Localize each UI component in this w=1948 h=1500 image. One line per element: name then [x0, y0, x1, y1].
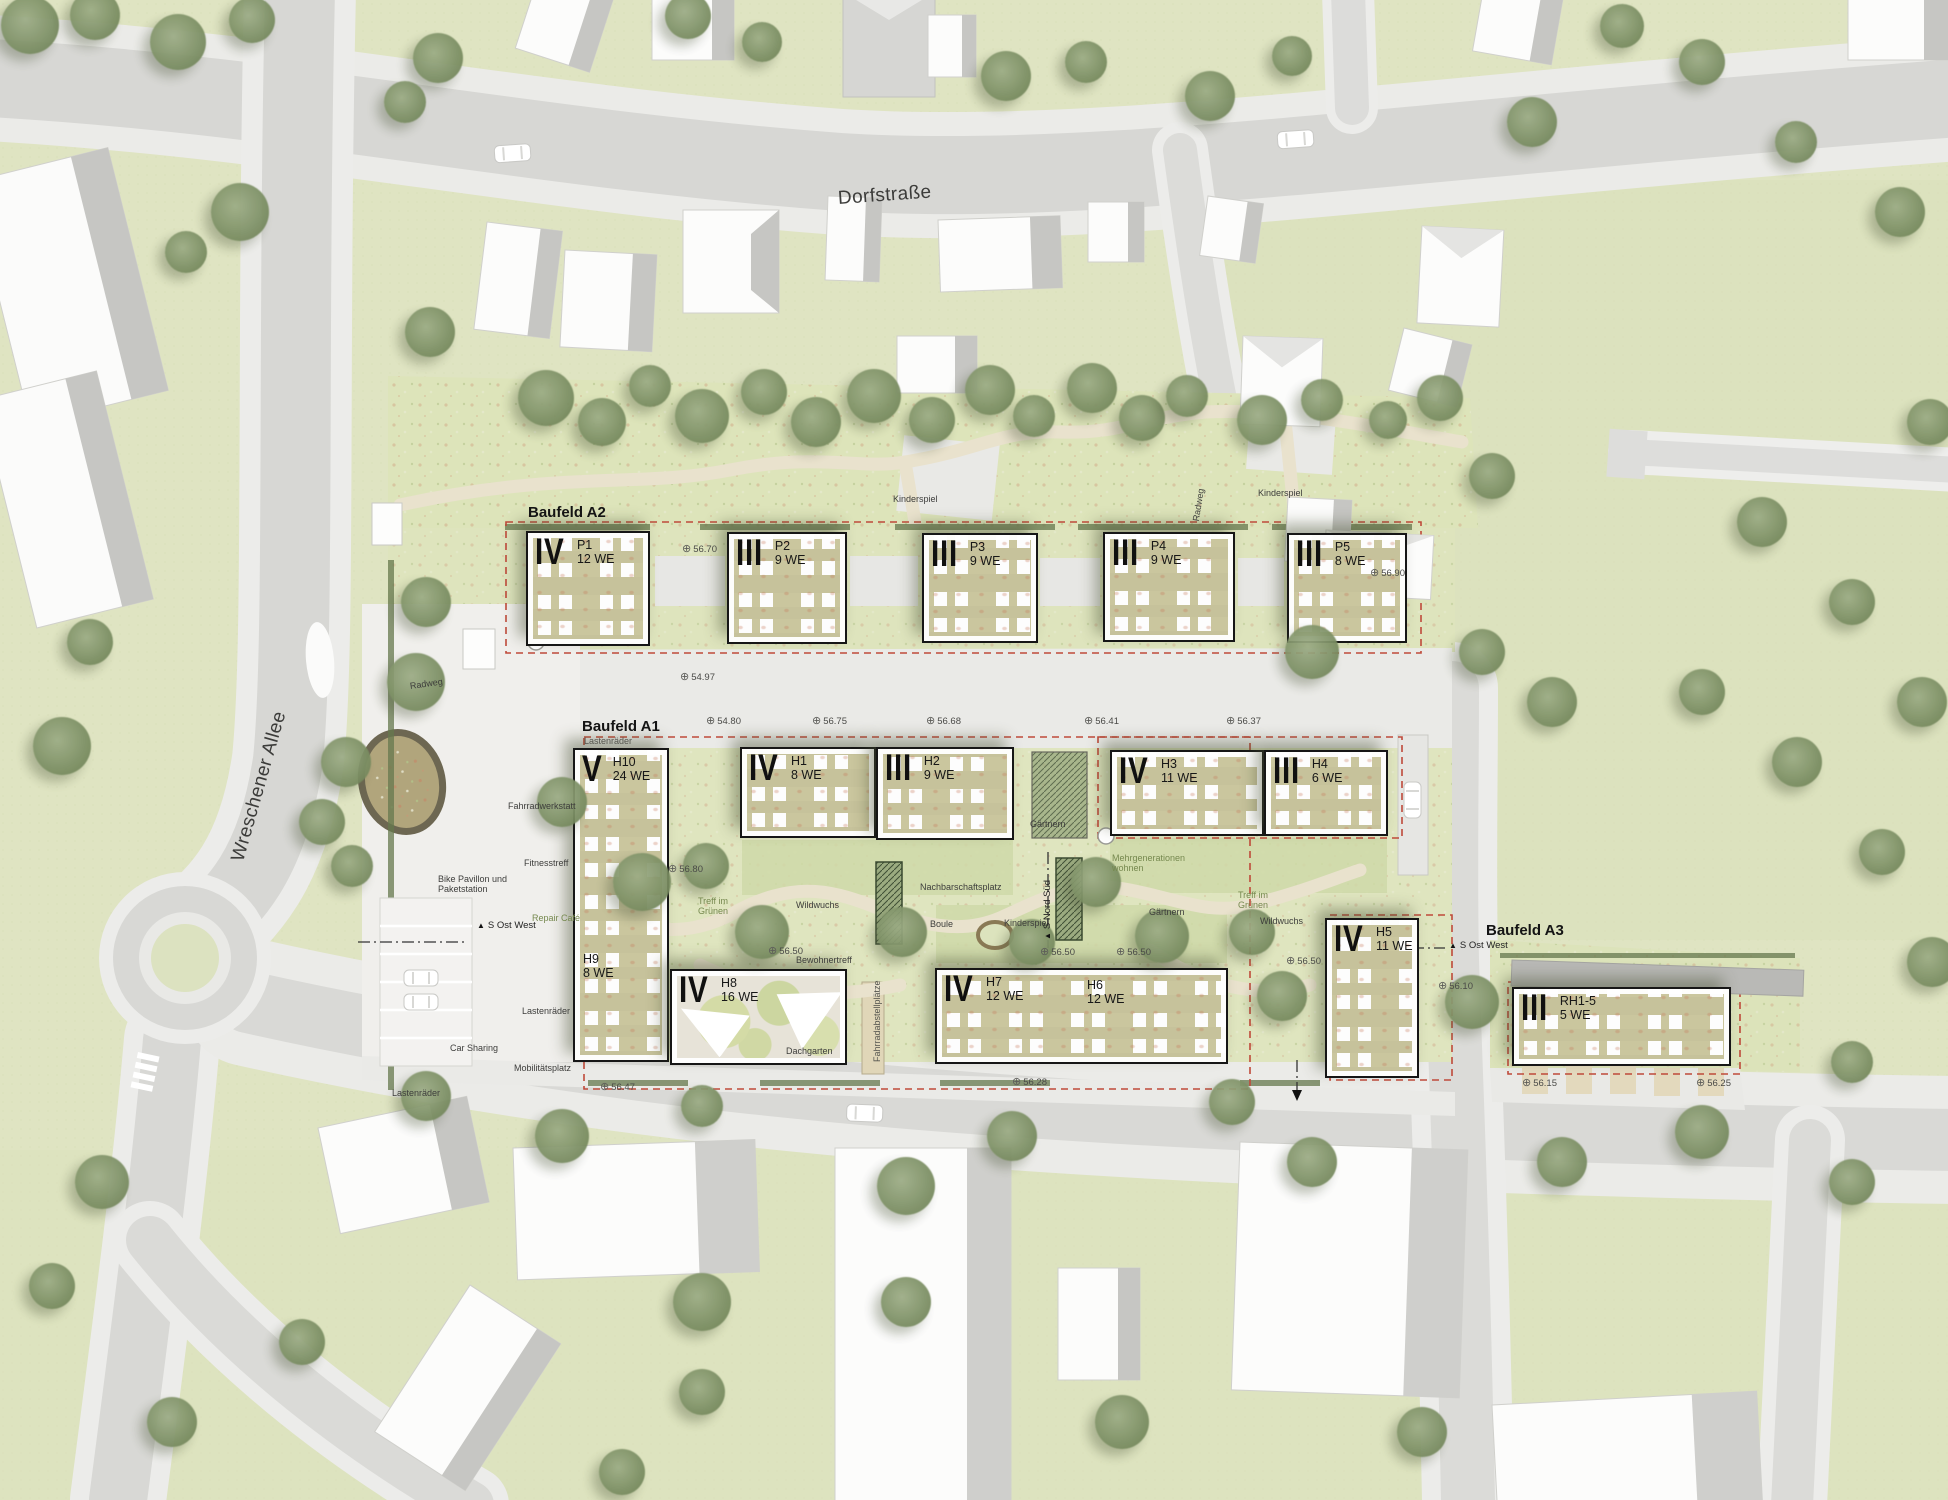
treff-im-gruenen-label: Treff im Grünen: [1238, 890, 1284, 911]
crosshair-icon: ⊕: [768, 946, 777, 957]
building-units: 5 WE: [1560, 1008, 1596, 1022]
tree: [1772, 737, 1822, 787]
tree: [1527, 677, 1577, 727]
building-storeys: IV: [535, 538, 565, 567]
tree: [987, 1111, 1037, 1161]
crosshair-icon: ⊕: [1286, 956, 1295, 967]
tree: [679, 1369, 725, 1415]
gaertnern-label: Gärtnern: [1030, 819, 1066, 829]
building-code: P2: [775, 539, 806, 553]
building-code: H10: [613, 755, 651, 769]
tree: [1459, 629, 1505, 675]
tree: [599, 1449, 645, 1495]
building-storeys: V: [582, 755, 603, 784]
building-storeys: III: [736, 539, 763, 568]
fahrradwerkstatt-label: Fahrradwerkstatt: [508, 801, 576, 811]
building-H4: III H46 WE: [1264, 750, 1388, 836]
tree: [1272, 36, 1312, 76]
building-units: 9 WE: [924, 768, 955, 782]
building-H5: IV H511 WE: [1325, 918, 1419, 1078]
tree: [518, 370, 574, 426]
tree: [1166, 375, 1208, 417]
building-storeys: III: [1112, 539, 1139, 568]
tree: [1831, 1041, 1873, 1083]
tree: [413, 33, 463, 83]
dimension-marker: ⊕54.97: [680, 672, 715, 683]
tree: [1185, 71, 1235, 121]
tree: [681, 1085, 723, 1127]
building-code: P5: [1335, 540, 1366, 554]
tree: [321, 737, 371, 787]
baufeld-a2-label: Baufeld A2: [528, 504, 606, 521]
tree: [613, 853, 671, 911]
tree: [965, 365, 1015, 415]
tree: [29, 1263, 75, 1309]
tree: [279, 1319, 325, 1365]
tree: [1507, 97, 1557, 147]
building-storeys: IV: [679, 976, 709, 1005]
tree: [847, 369, 901, 423]
building-H2: III H29 WE: [876, 747, 1014, 840]
building-P4: III P49 WE: [1103, 532, 1235, 642]
baufeld-a3-label: Baufeld A3: [1486, 922, 1564, 939]
tree: [33, 717, 91, 775]
dimension-marker: ⊕56.41: [1084, 716, 1119, 727]
tree: [1537, 1137, 1587, 1187]
bewohnertreff-label: Bewohnertreff: [796, 955, 852, 965]
nachbarschaftsplatz-label: Nachbarschaftsplatz: [920, 882, 1002, 892]
tree: [1775, 121, 1817, 163]
building-storeys: III: [931, 540, 958, 569]
dimension-marker: ⊕56.25: [1696, 1078, 1731, 1089]
crosshair-icon: ⊕: [926, 716, 935, 727]
building-storeys: III: [1296, 540, 1323, 569]
dimension-marker: ⊕56.50: [1286, 956, 1321, 967]
building-storeys: III: [885, 754, 912, 783]
wildwuchs-label: Wildwuchs: [1260, 916, 1303, 926]
tree: [1679, 39, 1725, 85]
tree: [147, 1397, 197, 1447]
section-marker-ost-west: ▲S Ost West: [477, 920, 536, 931]
building-units: 8 WE: [1335, 554, 1366, 568]
tree: [1600, 4, 1644, 48]
kinderspiel-label: Kinderspiel: [1258, 488, 1303, 498]
tree: [1209, 1079, 1255, 1125]
sail-canopy: [764, 982, 842, 1053]
building-code: H7: [986, 975, 1024, 989]
crosshair-icon: ⊕: [812, 716, 821, 727]
tree: [384, 81, 426, 123]
building-storeys: III: [1273, 757, 1300, 786]
crosshair-icon: ⊕: [600, 1082, 609, 1093]
tree: [742, 22, 782, 62]
tree: [741, 369, 787, 415]
tree: [535, 1109, 589, 1163]
building-code: RH1-5: [1560, 994, 1596, 1008]
building-code: P3: [970, 540, 1001, 554]
crosshair-icon: ⊕: [706, 716, 715, 727]
dimension-marker: ⊕56.75: [812, 716, 847, 727]
building-P1: IV P112 WE: [526, 531, 650, 646]
building-code: H5: [1376, 925, 1413, 939]
building-code: P4: [1151, 539, 1182, 553]
crosshair-icon: ⊕: [1696, 1078, 1705, 1089]
tree: [1469, 453, 1515, 499]
building-H1: IV H18 WE: [740, 747, 876, 838]
tree: [881, 1277, 931, 1327]
dimension-marker: ⊕56.50: [768, 946, 803, 957]
dimension-marker: ⊕56.28: [1012, 1077, 1047, 1088]
building-P2: III P29 WE: [727, 532, 847, 644]
tree: [1013, 395, 1055, 437]
tree: [165, 231, 207, 273]
building-storeys: IV: [749, 754, 779, 783]
mobilitaetsplatz-label: Mobilitätsplatz: [514, 1063, 571, 1073]
building-H3: IV H311 WE: [1110, 750, 1264, 836]
dimension-marker: ⊕56.37: [1226, 716, 1261, 727]
building-units: 11 WE: [1161, 771, 1198, 785]
kinderspiel-label: Kinderspiel: [893, 494, 938, 504]
tree: [1679, 669, 1725, 715]
wildwuchs-label: Wildwuchs: [796, 900, 839, 910]
tree: [877, 907, 927, 957]
tree: [331, 845, 373, 887]
dimension-marker: ⊕56.50: [1040, 947, 1075, 958]
crosshair-icon: ⊕: [668, 864, 677, 875]
building-H7-H6: IV H712 WE H612 WE: [935, 968, 1228, 1064]
tree: [1859, 829, 1905, 875]
building-storeys: IV: [1334, 925, 1364, 954]
tree: [909, 397, 955, 443]
tree: [1397, 1407, 1447, 1457]
tree: [1829, 579, 1875, 625]
tree: [401, 577, 451, 627]
gaertnern-label: Gärtnern: [1149, 907, 1185, 917]
tree: [405, 307, 455, 357]
tree: [1301, 379, 1343, 421]
tree: [675, 389, 729, 443]
boule-label: Boule: [930, 919, 953, 929]
crosshair-icon: ⊕: [682, 544, 691, 555]
building-code: H1: [791, 754, 822, 768]
tree: [1737, 497, 1787, 547]
tree: [1257, 971, 1307, 1021]
dimension-marker: ⊕56.50: [1116, 947, 1151, 958]
section-marker-nord-sued: ▲S Nord Süd: [1042, 880, 1053, 940]
crosshair-icon: ⊕: [1370, 568, 1379, 579]
repair-cafe-label: Repair Café: [532, 913, 580, 923]
building-units: 12 WE: [1087, 992, 1125, 1006]
dimension-marker: ⊕56.90: [1370, 568, 1405, 579]
building-units: 12 WE: [577, 552, 615, 566]
mehrgenerationen-label: Mehrgenerationen wohnen: [1112, 853, 1204, 874]
tree: [150, 14, 206, 70]
triangle-icon: ▲: [477, 922, 485, 930]
tree: [67, 619, 113, 665]
tree: [1237, 395, 1287, 445]
tree: [1897, 677, 1947, 727]
fitnesstreff-label: Fitnesstreff: [524, 858, 568, 868]
building-code: H9: [583, 952, 614, 966]
crosshair-icon: ⊕: [1084, 716, 1093, 727]
building-storeys: III: [1521, 994, 1548, 1023]
lastenraeder-label: Lastenräder: [522, 1006, 570, 1016]
tree: [791, 397, 841, 447]
baufeld-a1-label: Baufeld A1: [582, 718, 660, 735]
crosshair-icon: ⊕: [1116, 947, 1125, 958]
crosshair-icon: ⊕: [1012, 1077, 1021, 1088]
tree: [75, 1155, 129, 1209]
bike-pavillon-label: Bike Pavillon und Paketstation: [438, 874, 510, 895]
tree: [981, 51, 1031, 101]
tree: [1875, 187, 1925, 237]
section-marker-ost-west: ▲S Ost West: [1449, 940, 1508, 951]
tree: [1095, 1395, 1149, 1449]
building-units: 6 WE: [1312, 771, 1343, 785]
fahrradabstellplaetze-label: Fahrradabstellplätze: [872, 980, 882, 1062]
lastenraeder-label: Lastenräder: [392, 1088, 440, 1098]
tree: [629, 365, 671, 407]
triangle-icon: ▲: [1449, 942, 1457, 950]
building-code: H8: [721, 976, 759, 990]
dimension-marker: ⊕56.68: [926, 716, 961, 727]
dachgarten-label: Dachgarten: [786, 1046, 833, 1056]
dimension-marker: ⊕56.10: [1438, 981, 1473, 992]
tree: [1285, 625, 1339, 679]
building-RH1-5: III RH1-55 WE: [1512, 987, 1731, 1066]
crosshair-icon: ⊕: [1040, 947, 1049, 958]
building-code: H3: [1161, 757, 1198, 771]
crosshair-icon: ⊕: [1438, 981, 1447, 992]
dimension-marker: ⊕56.15: [1522, 1078, 1557, 1089]
building-code: H2: [924, 754, 955, 768]
treff-im-gruenen-label: Treff im Grünen: [698, 896, 744, 917]
tree: [1907, 399, 1948, 445]
crosshair-icon: ⊕: [1522, 1078, 1531, 1089]
site-plan: IV P112 WE III P29 WE III P39 WE III P49…: [0, 0, 1948, 1500]
building-storeys: IV: [1119, 757, 1149, 786]
tree: [1675, 1105, 1729, 1159]
building-storeys: IV: [944, 975, 974, 1004]
dimension-marker: ⊕56.80: [668, 864, 703, 875]
tree: [1067, 363, 1117, 413]
building-units: 8 WE: [791, 768, 822, 782]
tree: [1417, 375, 1463, 421]
tree: [1829, 1159, 1875, 1205]
tree: [1287, 1137, 1337, 1187]
triangle-icon: ▲: [1044, 932, 1052, 940]
dimension-marker: ⊕54.80: [706, 716, 741, 727]
tree: [1369, 401, 1407, 439]
building-P3: III P39 WE: [922, 533, 1038, 643]
building-code: H6: [1087, 978, 1125, 992]
building-units: 8 WE: [583, 966, 614, 980]
building-units: 9 WE: [775, 553, 806, 567]
building-units: 24 WE: [613, 769, 651, 783]
dimension-marker: ⊕56.70: [682, 544, 717, 555]
building-code: H4: [1312, 757, 1343, 771]
tree: [299, 799, 345, 845]
tree: [673, 1273, 731, 1331]
crosshair-icon: ⊕: [680, 672, 689, 683]
crosshair-icon: ⊕: [1226, 716, 1235, 727]
tree: [877, 1157, 935, 1215]
building-units: 9 WE: [970, 554, 1001, 568]
tree: [1065, 41, 1107, 83]
dimension-marker: ⊕56.47: [600, 1082, 635, 1093]
building-units: 12 WE: [986, 989, 1024, 1003]
tree: [1119, 395, 1165, 441]
tree: [578, 398, 626, 446]
building-units: 9 WE: [1151, 553, 1182, 567]
building-code: P1: [577, 538, 615, 552]
building-units: 11 WE: [1376, 939, 1413, 953]
building-units: 16 WE: [721, 990, 759, 1004]
car-sharing-label: Car Sharing: [450, 1043, 498, 1053]
roundabout: [99, 872, 271, 1044]
tree: [211, 183, 269, 241]
lastenraeder-label: Lastenräder: [584, 736, 632, 746]
